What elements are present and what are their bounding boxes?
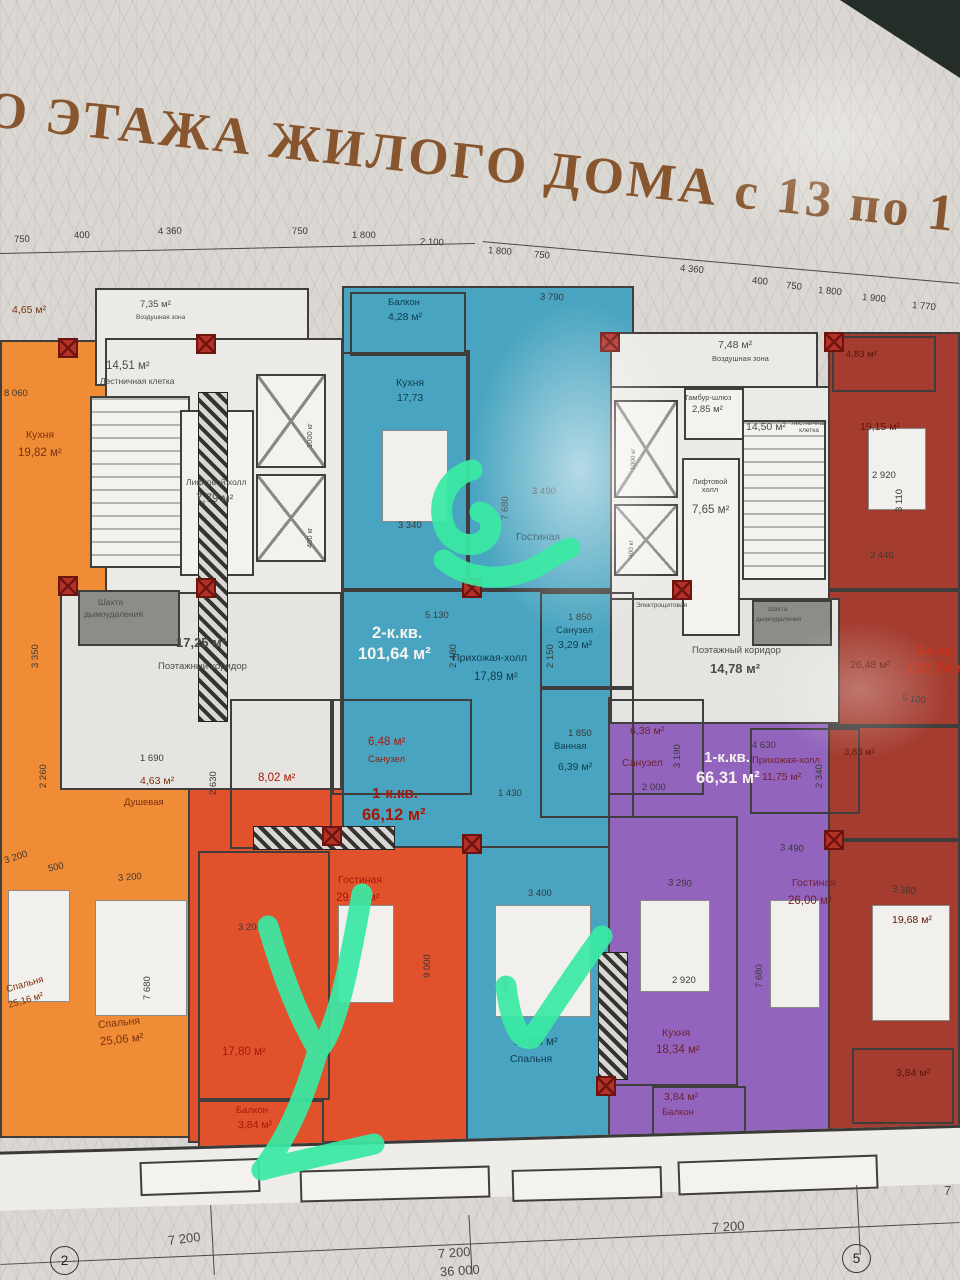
room-area: 6,38 м² xyxy=(630,726,664,738)
dim-label: 7 680 xyxy=(500,976,511,1000)
sofa xyxy=(338,905,394,1003)
room-area: 3,29 м² xyxy=(558,640,592,652)
room-area: 11,75 м² xyxy=(762,772,801,784)
table xyxy=(382,430,448,522)
room-area: 4,65 м² xyxy=(12,305,46,317)
dim-label: 2 920 xyxy=(672,975,696,986)
dim-label: 3 200 xyxy=(238,922,262,933)
room-area: 7,48 м² xyxy=(718,340,752,352)
facade-notch xyxy=(677,1155,878,1196)
room-label: Поэтажный коридор xyxy=(692,646,781,657)
room-area: 3,84 м² xyxy=(664,1092,698,1104)
room-area: 7,65 м² xyxy=(692,504,729,517)
room-area: 29,98 м² xyxy=(336,892,380,905)
dim-label: 1 430 xyxy=(498,788,522,799)
dim-label: 7 xyxy=(944,1184,951,1199)
darkred-wall-1 xyxy=(828,588,960,592)
column-node xyxy=(58,338,78,358)
elevator-left-400 xyxy=(256,474,326,562)
room-label: Прихожая-холл xyxy=(752,756,820,767)
stairwell-right xyxy=(742,420,826,580)
apartment-darkred-balcony-top xyxy=(832,336,936,392)
dim-label: 3 350 xyxy=(30,644,41,668)
dim-label: 7 680 xyxy=(142,976,153,1000)
room-label: Ванная xyxy=(554,742,587,753)
apartment-type: 2-к.кв. xyxy=(372,624,423,642)
dim-label: 2 150 xyxy=(545,644,556,668)
room-label: Балкон xyxy=(388,298,420,309)
dimension-line xyxy=(0,1222,959,1265)
dim-label: 7 200 xyxy=(712,1219,745,1235)
room-label: Спальня xyxy=(510,1054,552,1066)
room-area: 19,68 м² xyxy=(892,915,932,927)
column-node xyxy=(196,334,216,354)
dim-label: 3 290 xyxy=(668,877,692,889)
room-label: Гостиная xyxy=(792,878,836,890)
room-label: Кухня xyxy=(396,378,424,390)
dim-label: 4 360 xyxy=(680,263,705,276)
column-node xyxy=(58,576,78,596)
room-area: 4,63 м² xyxy=(140,776,174,788)
room-area: 14,78 м² xyxy=(710,662,760,677)
dim-label: 750 xyxy=(786,280,803,292)
room-label: Лифтовой холл xyxy=(686,478,734,495)
room-area: 18,34 м² xyxy=(656,1044,700,1057)
elevator-capacity: 400 кг xyxy=(306,527,314,548)
dim-label: 7 200 xyxy=(167,1230,201,1248)
room-label: Балкон xyxy=(662,1108,694,1119)
apartment-area: 66,12 м² xyxy=(362,806,426,824)
dim-label: 4 630 xyxy=(752,740,776,751)
dim-label: 750 xyxy=(14,234,30,246)
dim-label: 2 340 xyxy=(814,764,825,788)
dim-label: 36 000 xyxy=(440,1263,481,1280)
apartment-type: 1-к.кв. xyxy=(704,750,750,767)
dim-label: 3 400 xyxy=(528,888,552,899)
room-label: Балкон xyxy=(236,1106,268,1117)
dim-label: 1 900 xyxy=(862,292,887,305)
room-label: Воздушная зона xyxy=(136,314,185,321)
room-area: 14,50 м² xyxy=(746,422,786,434)
column-node xyxy=(462,834,482,854)
dim-label: 3 380 xyxy=(891,884,916,897)
dimension-line xyxy=(0,243,475,254)
dim-label: 3 200 xyxy=(118,871,142,884)
column-node xyxy=(322,826,342,846)
column-node xyxy=(196,578,216,598)
dim-label: 3 440 xyxy=(870,550,894,561)
room-label: Кухня xyxy=(662,1028,690,1040)
stairwell-left xyxy=(90,396,190,568)
dim-label: 4 360 xyxy=(158,226,182,238)
bed xyxy=(495,905,591,1017)
dim-label: 1 690 xyxy=(140,753,164,764)
dim-label: 750 xyxy=(534,249,551,261)
dim-label: 1 800 xyxy=(488,245,512,258)
dim-label: 3 340 xyxy=(398,520,422,531)
dimension-line xyxy=(483,241,959,284)
room-area: 19,15 м² xyxy=(860,422,900,434)
dim-label: 3 490 xyxy=(780,842,804,854)
dim-label: 2 920 xyxy=(872,470,896,481)
room-area: 7,79 м² xyxy=(196,493,233,506)
dim-label: 7 680 xyxy=(754,964,765,988)
room-area: 26,00 м² xyxy=(788,895,832,908)
room-label: Лестничная клетка xyxy=(100,377,174,387)
room-area: 17,25 м² xyxy=(176,636,226,651)
room-label: Лифтовой холл xyxy=(186,478,247,488)
room-area: 2,85 м² xyxy=(692,405,723,416)
room-area: 4,83 м² xyxy=(846,350,877,361)
room-area: 4,28 м² xyxy=(388,312,422,324)
dim-label: 1 850 xyxy=(568,728,592,739)
red-kitchen xyxy=(198,851,330,1100)
photo-glare xyxy=(770,620,950,760)
room-area: 3,84 м² xyxy=(896,1068,930,1080)
room-label: Лестничная клетка xyxy=(788,420,830,435)
dim-label: 3 190 xyxy=(672,744,683,768)
room-area: 7,35 м² xyxy=(140,300,171,311)
column-node xyxy=(824,332,844,352)
darkred-wall-3 xyxy=(828,838,960,842)
purple-wc xyxy=(608,699,704,795)
dim-label: 400 xyxy=(752,275,769,287)
column-node xyxy=(462,578,482,598)
room-label: дымоудаления xyxy=(84,610,143,620)
axis-marker: 2 xyxy=(50,1246,79,1275)
dim-label: 9 000 xyxy=(422,954,433,978)
room-area: 6,48 м² xyxy=(368,736,405,749)
room-label: Тамбур-шлюз xyxy=(684,394,731,402)
room-area: 17,73 xyxy=(397,393,423,405)
floor-plan-poster-photo: { "title": { "text": "О ЭТАЖА ЖИЛОГО ДОМ… xyxy=(0,0,960,1280)
bed xyxy=(95,900,187,1016)
dim-label: 7 200 xyxy=(438,1245,471,1262)
room-label: Шахта xyxy=(98,598,123,608)
room-label: дымоудаления xyxy=(756,616,801,623)
room-area: 3,84 м² xyxy=(238,1120,272,1132)
dim-label: 750 xyxy=(292,226,308,237)
dim-label: 5 130 xyxy=(425,610,449,621)
room-area: 6,39 м² xyxy=(558,762,592,774)
dim-label: 400 xyxy=(74,230,90,242)
column-node xyxy=(596,1076,616,1096)
dim-label: 1 800 xyxy=(352,230,376,241)
dim-label: 8 060 xyxy=(4,388,28,399)
wall-hatch xyxy=(598,952,628,1080)
facade-notch xyxy=(512,1166,663,1202)
dim-label: 2 630 xyxy=(208,771,219,795)
elevator-left-1000 xyxy=(256,374,326,468)
elevator-capacity: 1000 кг xyxy=(306,423,314,448)
room-label: Санузел xyxy=(622,758,663,770)
room-label: Душевая xyxy=(124,798,164,809)
sofa xyxy=(770,900,820,1008)
column-node xyxy=(824,830,844,850)
apartment-area: 66,31 м² xyxy=(696,769,760,787)
room-label: Кухня xyxy=(26,430,54,442)
dim-label: 3 110 xyxy=(894,489,905,512)
dimension-tick xyxy=(210,1205,215,1275)
dim-label: 2 000 xyxy=(642,782,666,793)
room-label: Шахта xyxy=(768,606,787,613)
column-node xyxy=(672,580,692,600)
room-area: 17,98 м² xyxy=(514,1036,558,1049)
axis-marker: 5 xyxy=(842,1244,871,1273)
room-label: Гостиная xyxy=(338,875,382,887)
apartment-darkred-balcony-bottom xyxy=(852,1048,954,1124)
room-area: 14,51 м² xyxy=(106,360,150,373)
dim-label: 2 100 xyxy=(420,237,444,249)
room-label: Поэтажный коридор xyxy=(158,662,247,673)
room-area: 8,02 м² xyxy=(258,772,295,785)
room-area: 17,80 м² xyxy=(222,1046,266,1059)
room-label: Прихожая-холл xyxy=(452,653,527,665)
apartment-area: 101,64 м² xyxy=(358,645,431,663)
room-area: 17,89 м² xyxy=(474,671,518,684)
dim-label: 2 260 xyxy=(38,764,49,788)
dim-label: 1 800 xyxy=(818,285,843,298)
room-label: Воздушная зона xyxy=(712,355,769,363)
photo-glare xyxy=(470,300,690,640)
apartment-type: 1-к.кв. xyxy=(372,786,418,803)
room-label: Санузел xyxy=(368,755,405,766)
facade-notch xyxy=(139,1158,260,1196)
facade-notch xyxy=(300,1166,491,1203)
photo-glare xyxy=(690,40,960,240)
room-area: 19,82 м² xyxy=(18,447,62,460)
dim-label: 1 770 xyxy=(912,300,937,313)
